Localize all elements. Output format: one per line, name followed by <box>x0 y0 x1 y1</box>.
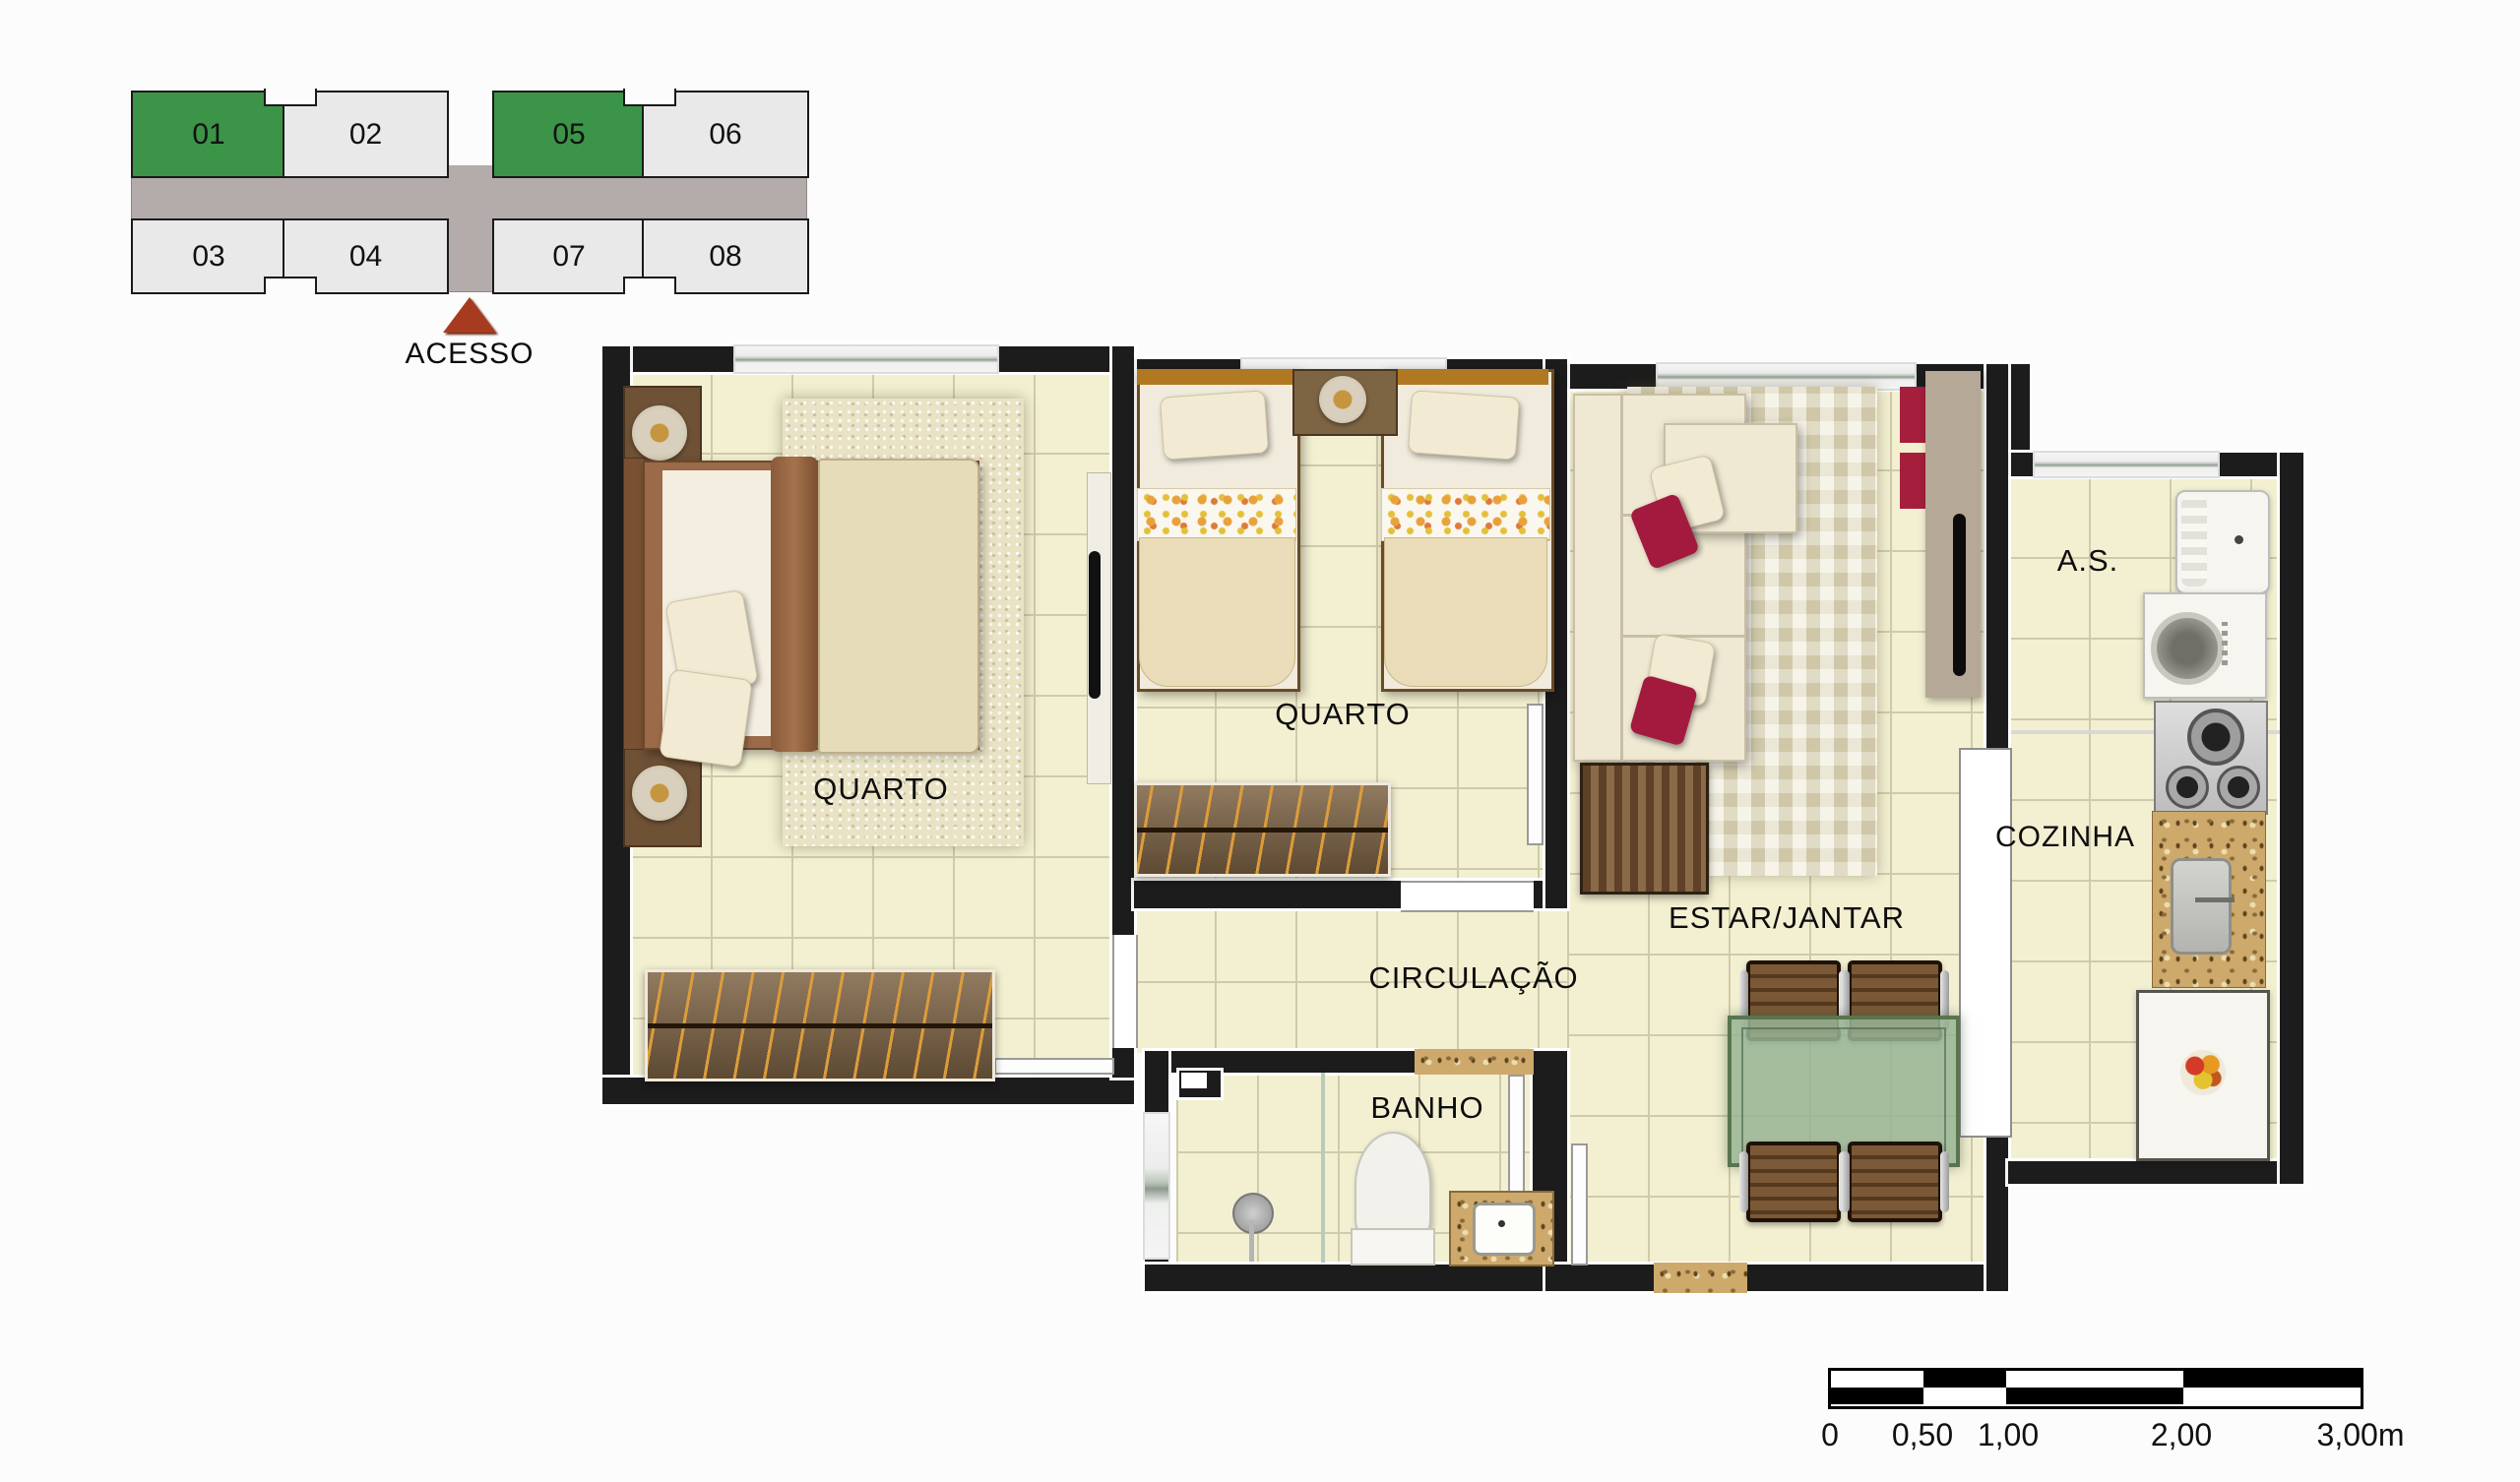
unit-05-label: 05 <box>552 118 585 152</box>
wall-right-outer <box>2280 453 2303 1184</box>
unit-07-label: 07 <box>552 240 585 274</box>
quarto2-pillow <box>1408 390 1520 461</box>
laundry-tank-drain <box>2235 535 2243 544</box>
scale-segment <box>1831 1371 1923 1388</box>
quarto1-lamp-bottom <box>632 766 687 821</box>
stove-burner-small <box>2166 766 2209 809</box>
key-plan-notch <box>623 277 676 294</box>
scale-label-050: 0,50 <box>1892 1417 1953 1453</box>
stove <box>2154 701 2268 815</box>
scale-bar-top-row <box>1831 1371 2361 1388</box>
kitchen-sink <box>2171 858 2232 955</box>
wall-living-bottom <box>1545 1265 2008 1291</box>
door-quarto2-leaf <box>1527 704 1543 845</box>
dining-chair <box>1746 1142 1841 1222</box>
washer-controls <box>2222 622 2228 665</box>
quarto1-bed-blanket-fold <box>771 457 818 752</box>
key-plan-notch <box>264 89 317 106</box>
shower-niche <box>1181 1073 1207 1088</box>
quarto2-wardrobe <box>1134 782 1391 877</box>
quarto1-pillow <box>659 669 753 769</box>
scale-bar <box>1828 1368 2363 1409</box>
unit-01-label: 01 <box>192 118 224 152</box>
window-banho <box>1143 1112 1170 1260</box>
quarto1-wardrobe <box>645 969 995 1081</box>
fruit-bowl <box>2180 1050 2226 1095</box>
banho-faucet-dot <box>1498 1220 1505 1227</box>
banho-sink <box>1473 1203 1536 1256</box>
unit-06-label: 06 <box>709 118 741 152</box>
scale-segment <box>1831 1388 1923 1404</box>
stove-burner-large <box>2187 709 2244 766</box>
door-quarto2-opening <box>1401 881 1534 912</box>
wall-divider-tv <box>1986 364 2008 748</box>
quarto1-lamp-top <box>632 405 687 461</box>
dining-table-inner-line <box>1741 1027 1946 1155</box>
wall-kitchen-bottom <box>2008 1161 2303 1184</box>
entry-door-threshold <box>1654 1263 1747 1293</box>
wall-banho-bottom <box>1145 1265 1568 1291</box>
quarto2-floral-band <box>1137 488 1296 541</box>
quarto1-bed-duvet <box>818 459 979 754</box>
quarto2-pillow <box>1160 390 1269 460</box>
unit-02-label: 02 <box>349 118 382 152</box>
wall-divider-stub <box>1986 1132 2008 1291</box>
scale-label-200: 2,00 <box>2151 1417 2212 1453</box>
quarto2-bed-right <box>1381 369 1554 692</box>
window-quarto1 <box>733 344 999 374</box>
door-quarto1-opening <box>1112 935 1138 1048</box>
quarto1-bed-headboard <box>623 458 645 750</box>
shower-arm <box>1249 1220 1254 1262</box>
label-circulacao: CIRCULAÇÃO <box>1368 960 1578 996</box>
key-plan-notch <box>264 277 317 294</box>
quarto1-tv <box>1089 551 1101 699</box>
passage-kitchen-opening <box>1959 748 2012 1138</box>
sofa-seat-line <box>1620 396 1623 760</box>
scale-label-100: 1,00 <box>1978 1417 2039 1453</box>
washer-drum-icon <box>2151 612 2224 685</box>
quarto2-duvet <box>1139 537 1295 687</box>
label-quarto-2: QUARTO <box>1275 697 1411 732</box>
toilet-tank <box>1351 1228 1435 1266</box>
quarto2-duvet <box>1384 537 1547 687</box>
access-label: ACESSO <box>405 338 534 371</box>
washing-machine <box>2143 592 2267 699</box>
wall-banho-top <box>1145 1051 1415 1073</box>
bed-head-bar <box>1381 369 1548 385</box>
unit-03-label: 03 <box>192 240 224 274</box>
unit-08-label: 08 <box>709 240 741 274</box>
label-as: A.S. <box>2057 543 2119 579</box>
scale-label-300m: 3,00m <box>2317 1417 2405 1453</box>
stove-burner-small <box>2217 766 2260 809</box>
living-red-shelf <box>1900 387 1926 443</box>
scale-segment <box>2183 1388 2361 1404</box>
scale-segment <box>1923 1388 2006 1404</box>
scale-segment <box>1923 1371 2006 1388</box>
entry-door-leaf <box>1571 1143 1588 1266</box>
key-plan-notch <box>623 89 676 106</box>
scale-segment <box>2006 1371 2183 1388</box>
access-arrow-icon <box>443 297 496 333</box>
unit-04-label: 04 <box>349 240 382 274</box>
door-banho-threshold <box>1415 1049 1534 1075</box>
laundry-tank-ribs <box>2181 496 2207 587</box>
laundry-tank <box>2175 490 2270 594</box>
living-sideboard <box>1580 763 1709 895</box>
label-banho: BANHO <box>1370 1090 1483 1126</box>
window-as <box>2033 451 2220 478</box>
quarto2-bed-left <box>1137 369 1300 692</box>
kitchen-table <box>2136 990 2270 1161</box>
door-quarto1-leaf <box>994 1058 1114 1075</box>
floor-plan-page: 01 02 05 06 03 04 07 08 ACESSO <box>0 0 2520 1482</box>
living-red-shelf <box>1900 453 1926 509</box>
bed-head-bar <box>1137 369 1294 385</box>
label-quarto-1: QUARTO <box>813 772 949 807</box>
quarto2-lamp <box>1319 376 1366 423</box>
scale-label-0: 0 <box>1821 1417 1839 1453</box>
shower-glass <box>1321 1073 1325 1263</box>
wall-bottom-quarto1 <box>602 1078 1134 1104</box>
kitchen-faucet <box>2195 897 2235 902</box>
toilet-bowl <box>1354 1132 1431 1239</box>
scale-bar-bottom-row <box>1831 1388 2361 1404</box>
living-tv <box>1953 514 1966 676</box>
quarto1-bed <box>643 461 979 750</box>
key-plan: 01 02 05 06 03 04 07 08 ACESSO <box>0 0 886 394</box>
door-banho-leaf <box>1508 1075 1525 1199</box>
scale-segment <box>2006 1388 2183 1404</box>
label-estar-jantar: ESTAR/JANTAR <box>1669 900 1905 936</box>
scale-segment <box>2183 1371 2361 1388</box>
label-cozinha: COZINHA <box>1995 821 2135 854</box>
dining-chair <box>1848 1142 1942 1222</box>
quarto2-floral-band <box>1381 488 1550 541</box>
